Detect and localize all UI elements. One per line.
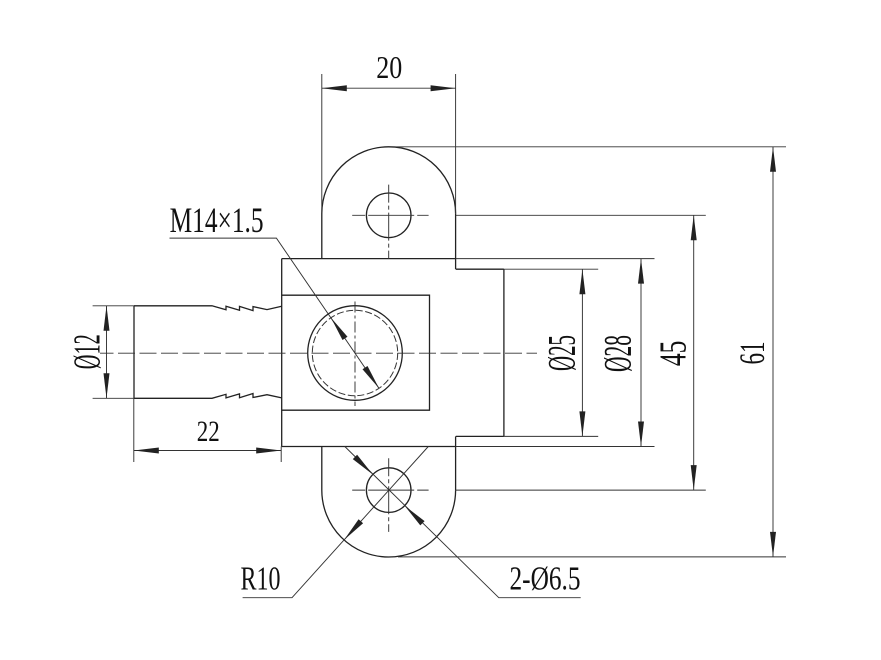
svg-text:M14×1.5: M14×1.5: [170, 200, 264, 240]
svg-text:Ø12: Ø12: [67, 334, 109, 369]
svg-text:20: 20: [376, 49, 402, 85]
svg-text:Ø25: Ø25: [541, 335, 584, 371]
svg-text:45: 45: [652, 341, 694, 367]
svg-text:Ø28: Ø28: [597, 335, 640, 372]
svg-text:61: 61: [732, 342, 772, 365]
svg-text:2-Ø6.5: 2-Ø6.5: [510, 560, 581, 597]
svg-text:R10: R10: [241, 560, 281, 597]
svg-text:22: 22: [197, 415, 220, 448]
